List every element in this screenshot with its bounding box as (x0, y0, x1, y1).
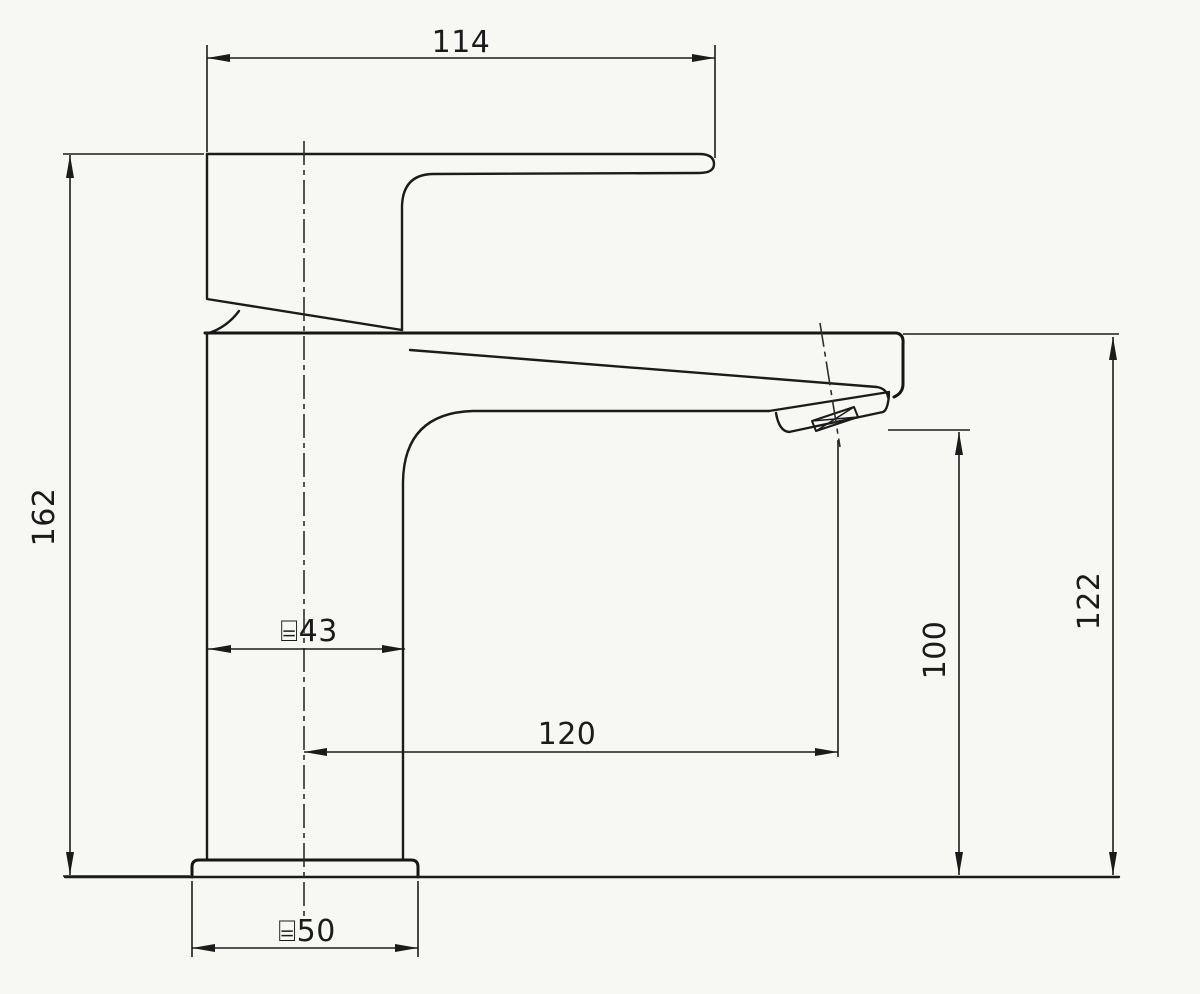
faucet-technical-drawing: 114 162 ⌸43 120 100 122 (0, 0, 1200, 994)
dim-handle-length: 114 (207, 25, 715, 158)
base-plate (192, 860, 418, 877)
dim-overall-height-label: 162 (27, 488, 62, 547)
arrowhead-left (207, 54, 230, 62)
dim-spout-outlet-height-label: 100 (918, 621, 953, 680)
arrowhead-right (382, 645, 405, 653)
dim-body-diameter: ⌸43 (208, 614, 405, 653)
extension-line (63, 154, 204, 876)
dim-spout-reach-label: 120 (538, 717, 597, 752)
arrowhead-right (692, 54, 715, 62)
spout-top-edge (205, 333, 903, 397)
arrowhead-right (395, 944, 418, 952)
dim-overall-height: 162 (27, 154, 204, 876)
arrowhead-left (192, 944, 215, 952)
handle-cap-front (209, 311, 239, 333)
arrowhead-bottom (66, 852, 74, 875)
arrowhead-bottom (955, 852, 963, 875)
arrowhead-right (815, 748, 838, 756)
dim-handle-length-label: 114 (432, 25, 491, 60)
dim-base-diameter: ⌸50 (192, 881, 418, 957)
dim-spout-outlet-height: 100 (888, 430, 970, 875)
dim-base-diameter-label: ⌸50 (278, 914, 336, 949)
dim-spout-top-height-label: 122 (1072, 572, 1107, 631)
spout-tip-bottom-edge (769, 392, 889, 411)
arrowhead-top (1109, 337, 1117, 360)
arrowhead-left (304, 748, 327, 756)
arrowhead-left (208, 645, 231, 653)
dim-spout-top-height: 122 (903, 334, 1119, 875)
arrowhead-bottom (1109, 852, 1117, 875)
faucet-outline (65, 154, 1119, 877)
spout-chamfer-edge (410, 350, 888, 397)
handle-lever-outline (207, 154, 714, 330)
dim-body-diameter-label: ⌸43 (280, 614, 338, 649)
extension-line (207, 45, 715, 158)
body-right-and-spout-underside (403, 411, 769, 860)
technical-drawing-canvas: 114 162 ⌸43 120 100 122 (0, 0, 1200, 994)
dim-spout-reach: 120 (304, 440, 838, 757)
arrowhead-top (955, 432, 963, 455)
arrowhead-top (66, 155, 74, 178)
